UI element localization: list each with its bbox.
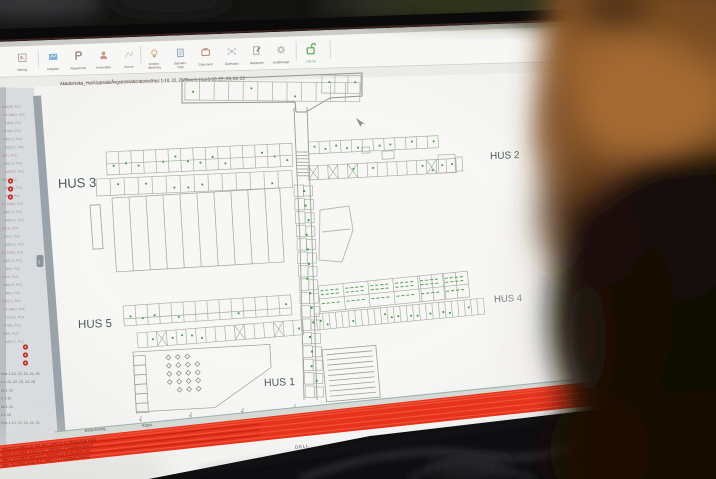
svg-text:GV19901, PLC: GV19901, PLC [2,202,24,207]
svg-text:A80171, PLC: A80171, PLC [5,242,25,247]
svg-text:8491, PLC: 8491, PLC [5,267,21,271]
svg-text:A80171, PLC: A80171, PLC [2,299,22,304]
svg-text:Kurvor: Kurvor [124,65,133,69]
svg-text:Användare: Användare [96,65,111,69]
svg-text:A80171, PLC: A80171, PLC [5,145,25,150]
svg-text:10011, PLC: 10011, PLC [2,275,19,279]
svg-text:8491, PLC: 8491, PLC [2,153,18,157]
svg-text:HUS 1: HUS 1 [264,376,295,389]
svg-text:TK7921, PLC: TK7921, PLC [2,129,22,134]
svg-text:s 1-10, 22, 23, 24, 25: s 1-10, 22, 23, 24, 25 [1,380,35,384]
svg-text:Hus 1-10, 22, 23, 24, 25: Hus 1-10, 22, 23, 24, 25 [1,421,40,425]
svg-text:A80171, PLC: A80171, PLC [3,137,23,142]
svg-text:GV19901, PLC: GV19901, PLC [2,250,24,255]
svg-text:10011, PLC: 10011, PLC [2,226,19,230]
svg-text:us 1-10: us 1-10 [1,405,13,409]
svg-text:A80025, PLC: A80025, PLC [2,104,22,109]
svg-text:8491, PLC: 8491, PLC [3,331,19,335]
svg-text:10011, PLC: 10011, PLC [3,234,20,238]
svg-text:n 1-10: n 1-10 [1,397,11,401]
svg-text:GV19901, PLC: GV19901, PLC [3,113,25,118]
svg-text:us 1-10: us 1-10 [1,388,13,392]
svg-text:Gateways: Gateways [225,61,239,65]
svg-text:8491, PLC: 8491, PLC [5,291,21,295]
svg-text:A80171, PLC: A80171, PLC [3,283,23,288]
svg-text:HUS 5: HUS 5 [78,318,112,331]
svg-text:logg: logg [177,65,183,69]
svg-text:TK7921, PLC: TK7921, PLC [5,315,25,320]
svg-text:Ritning: Ritning [17,68,27,72]
svg-text:HUS 3: HUS 3 [58,175,97,191]
svg-text:GV19901, PLC: GV19901, PLC [3,307,25,312]
svg-text:Regelmotor: Regelmotor [70,66,86,71]
svg-text:Klass: Klass [142,422,153,428]
svg-text:hantering: hantering [148,65,161,69]
svg-text:Lås Vy: Lås Vy [306,59,316,63]
svg-text:Hus 1-10, 22, 23, 24, 25: Hus 1-10, 22, 23, 24, 25 [1,372,40,376]
svg-text:Inställningar: Inställningar [273,60,290,65]
svg-text:A80171, PLC: A80171, PLC [5,218,25,223]
svg-text:A80171, PLC: A80171, PLC [5,339,25,344]
svg-text:A80171, PLC: A80171, PLC [3,258,23,263]
svg-text:10011, PLC: 10011, PLC [5,121,22,125]
svg-text:Rapporter: Rapporter [250,61,264,65]
svg-text:Diagram: Diagram [47,67,59,71]
svg-text:A80171, PLC: A80171, PLC [3,210,23,215]
svg-text:TK7921, PLC: TK7921, PLC [2,323,22,328]
svg-text:Dokument: Dokument [199,62,213,66]
svg-text:A80171, PLC: A80171, PLC [3,185,23,190]
svg-text:HUS 2: HUS 2 [490,150,520,162]
svg-text:A80171, PLC: A80171, PLC [3,161,23,166]
svg-text:s 1-10: s 1-10 [1,413,11,417]
svg-text:A80025, PLC: A80025, PLC [5,169,25,174]
